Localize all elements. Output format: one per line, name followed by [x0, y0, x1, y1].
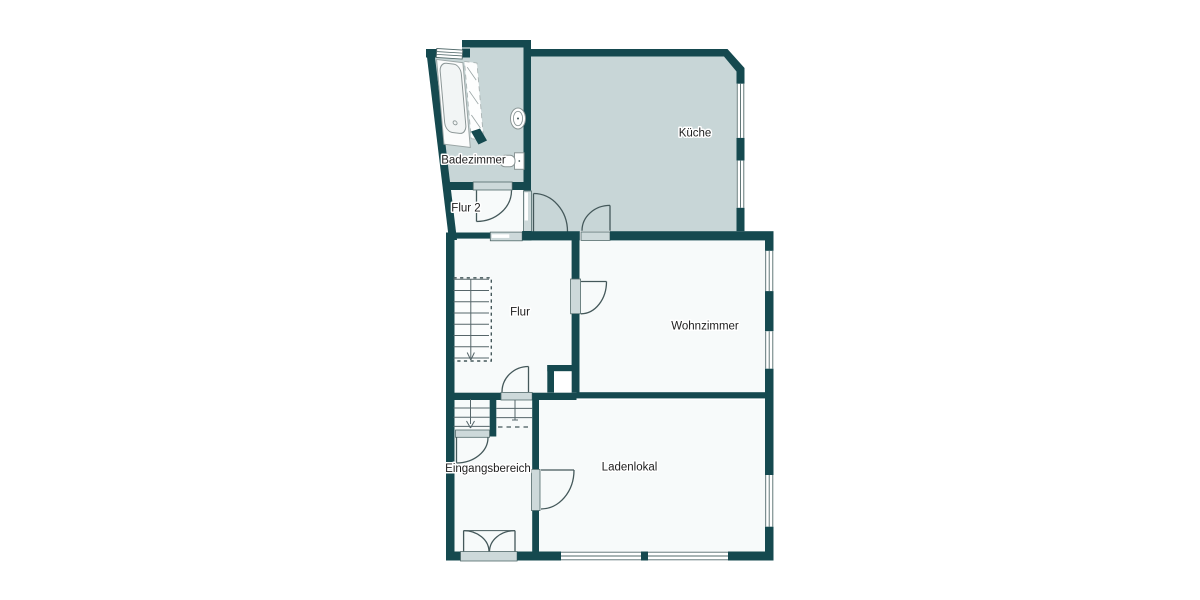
svg-text:Wohnzimmer: Wohnzimmer	[671, 321, 739, 333]
svg-text:Eingangsbereich: Eingangsbereich	[445, 463, 531, 475]
svg-text:Ladenlokal: Ladenlokal	[602, 462, 658, 474]
svg-text:Küche: Küche	[679, 128, 712, 140]
svg-text:Flur 2: Flur 2	[451, 203, 480, 215]
svg-text:Flur: Flur	[510, 307, 530, 319]
svg-text:Badezimmer: Badezimmer	[441, 155, 506, 167]
